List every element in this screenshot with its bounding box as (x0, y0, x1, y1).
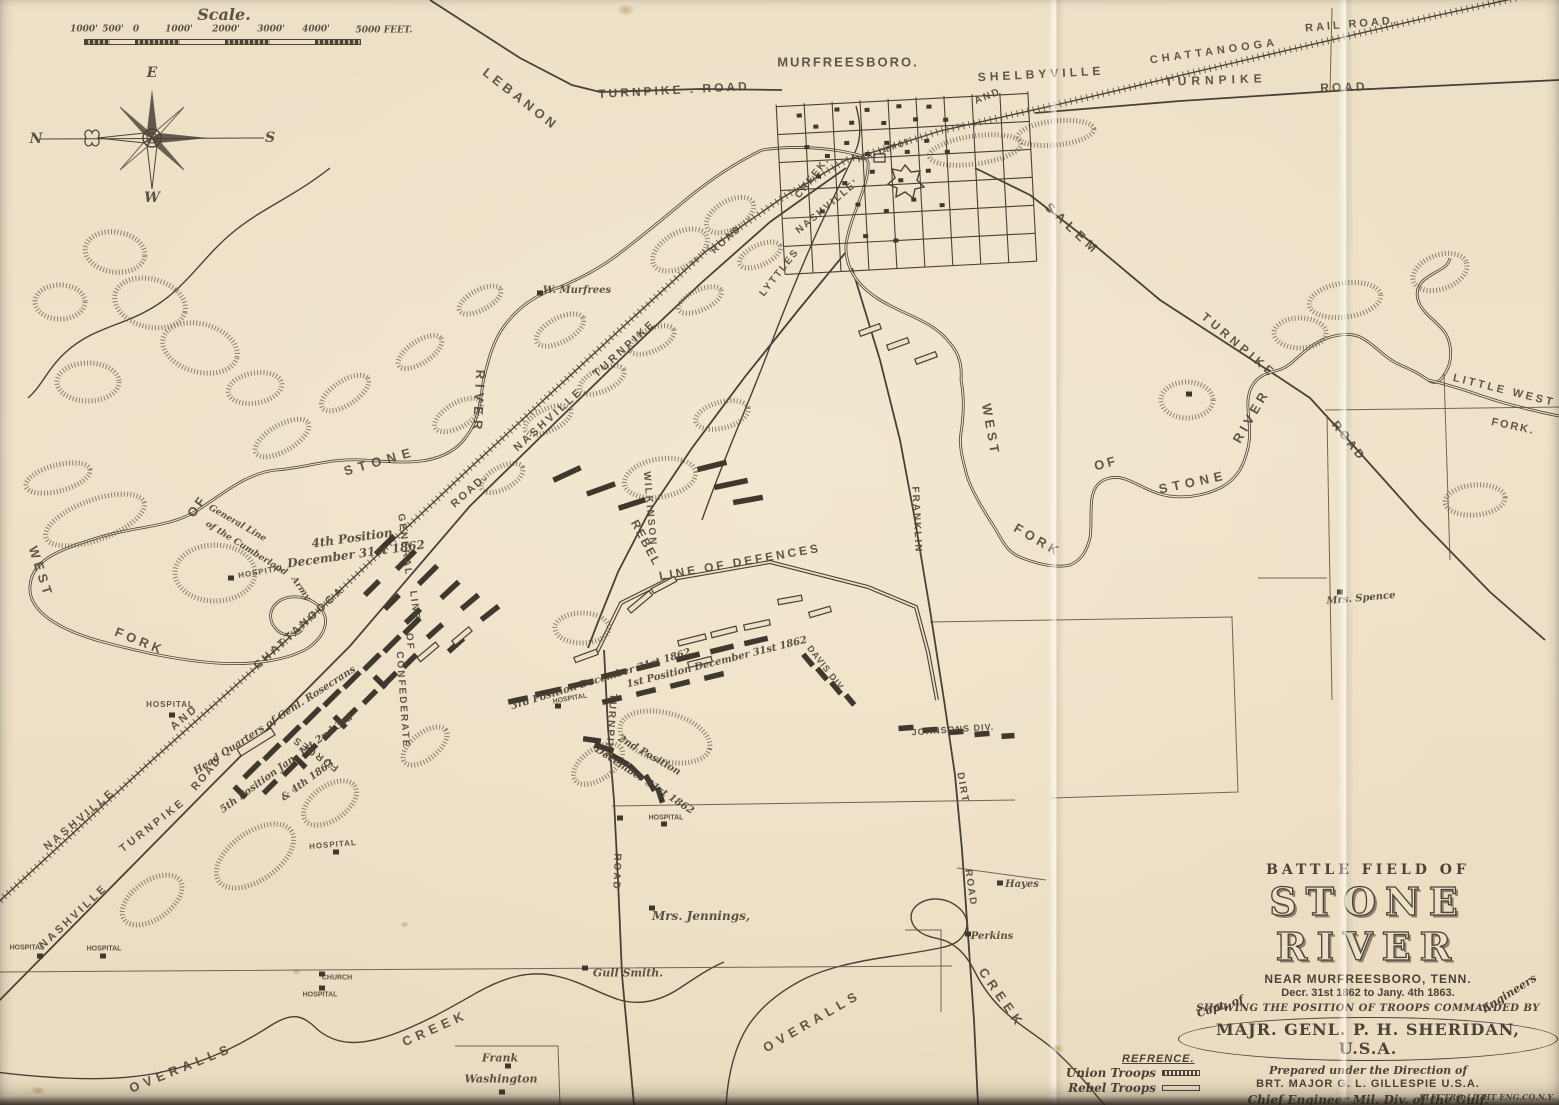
map-label: STONE (342, 444, 417, 477)
map-series-title: BATTLE FIELD OF (1178, 862, 1558, 878)
map-label: WEST (27, 545, 56, 600)
map-label: TURNPIKE (603, 693, 618, 761)
map-label: ROAD (962, 869, 977, 907)
map-label: ROAD (610, 853, 621, 891)
map-label: Army (289, 576, 312, 603)
map-label: Washington (465, 1074, 538, 1085)
map-label: ROAD. (449, 472, 490, 511)
map-label: 4000' (302, 26, 330, 35)
map-label: NASHVILLE (38, 883, 111, 952)
legend: REFRENCE. Union Troops Rebel Troops (1060, 1053, 1250, 1095)
map-label: Hayes (1005, 880, 1039, 890)
map-label: TURNPIKE . ROAD (598, 80, 750, 100)
map-label: 500' (102, 26, 124, 35)
map-label: HOSPITAL (87, 946, 122, 953)
map-label: FRANKLIN (909, 486, 922, 554)
map-label: 1000' (165, 26, 193, 35)
map-label: LINE (407, 590, 421, 622)
map-label: LEBANON (481, 65, 562, 132)
legend-title: REFRENCE. (1122, 1053, 1250, 1065)
map-label: Frank (482, 1053, 518, 1064)
map-label: LITTLE WEST (1452, 373, 1557, 409)
map-label: N (30, 132, 43, 146)
map-label: OF (1093, 454, 1120, 473)
map-label: HOSPITAL (309, 839, 357, 851)
map-label: TURNPIKE (118, 797, 188, 855)
map-label: WEST (980, 402, 1002, 457)
map-label: 0 (133, 26, 139, 35)
map-label: SHELBYVILLE (977, 65, 1104, 84)
map-label: ROAD. (1320, 80, 1374, 94)
map-label: RIVER (471, 369, 487, 434)
map-label: LYTTLES (758, 247, 801, 298)
map-label: HOSPITAL (303, 992, 338, 999)
map-label: 1000' (70, 26, 98, 35)
map-label: Mrs. Jennings, (652, 910, 750, 922)
map-label: Scale. (197, 7, 251, 23)
map-label: NASHVILLE (512, 386, 586, 454)
legend-label: Rebel Troops (1060, 1081, 1156, 1095)
map-label: RAIL ROAD. (1305, 15, 1400, 34)
map-label: S (265, 131, 275, 145)
map-label: MURFREESBORO. (777, 56, 919, 69)
map-label: FORK (113, 625, 167, 657)
map-label: AND (973, 87, 1002, 107)
map-label: OF (185, 492, 209, 519)
battlefield-map: Scale.1000'500'01000'2000'3000'4000'5000… (0, 0, 1559, 1105)
map-label: JOHNSONS DIV. (911, 723, 994, 738)
map-main-title: STONE RIVER (1178, 879, 1558, 969)
map-label: W (144, 191, 160, 205)
map-subtitle-location: NEAR MURFREESBORO, TENN. (1178, 972, 1558, 986)
union-troops-bar-icon (1162, 1070, 1200, 1076)
map-label: CHURCH (322, 975, 352, 982)
map-label: DIRT (954, 772, 969, 805)
legend-item-union: Union Troops (1060, 1066, 1250, 1080)
map-label: HOSPITAL (146, 701, 194, 709)
map-label: TURNPIKE (1199, 310, 1278, 379)
map-label: CONFEDERATE (394, 651, 411, 749)
map-label: TURNPIKE (1165, 72, 1267, 88)
legend-item-rebel: Rebel Troops (1060, 1081, 1250, 1095)
map-label: CREEK. (794, 155, 833, 200)
map-label: DAVIS DIV. (805, 644, 847, 694)
map-label: LINE OF DEFENCES (658, 542, 822, 582)
map-label: HOSPITAL (10, 945, 45, 952)
map-label: SALEM (1043, 200, 1103, 258)
map-label: FORK. (1490, 417, 1536, 437)
map-label: Perkins (971, 932, 1014, 942)
map-label: HOSPITAL (649, 815, 684, 822)
map-label: 3000' (257, 26, 285, 35)
map-label: Gull Smith. (593, 968, 663, 979)
map-label: R.R. DEPOT (856, 138, 911, 165)
map-label: OF (403, 633, 415, 652)
map-label: CHATTANOOGA (1149, 38, 1278, 67)
map-label: OVERALLS (761, 988, 863, 1055)
map-label: NASHVILLE (42, 787, 118, 853)
map-label: TURNPIKE (592, 318, 659, 380)
map-label: 5000 FEET. (356, 27, 413, 36)
map-label: STONE (1158, 468, 1229, 495)
legend-label: Union Troops (1060, 1066, 1156, 1080)
map-label: ROAD (1330, 419, 1369, 464)
map-label: 2000' (212, 26, 240, 35)
map-label: E (147, 66, 158, 80)
map-label: CREEK (976, 965, 1027, 1030)
map-label: W. Murfrees (543, 286, 611, 296)
map-label: ROAD (710, 224, 745, 256)
map-label: FORK (1012, 521, 1064, 559)
map-label: CREEK (400, 1008, 470, 1049)
rebel-troops-bar-icon (1162, 1085, 1200, 1091)
map-label: RIVER (1230, 387, 1271, 445)
map-label: OVERALLS (127, 1041, 235, 1095)
map-label: Mrs. Spence (1326, 591, 1396, 607)
map-label: HOSPITAL (238, 564, 287, 580)
